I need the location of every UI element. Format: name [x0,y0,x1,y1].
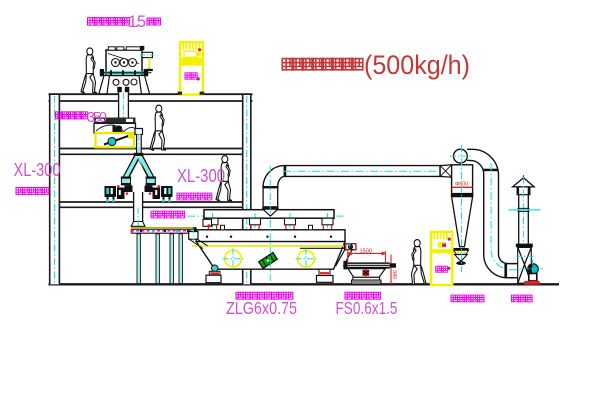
svg-text:XL-300: XL-300 [14,160,61,180]
svg-text:340: 340 [391,270,397,279]
svg-text:350: 350 [87,110,107,126]
svg-text:(500kg/h): (500kg/h) [364,50,470,80]
svg-text:1500: 1500 [360,248,372,254]
svg-text:FS0.6x1.5: FS0.6x1.5 [336,298,398,318]
svg-text:1.5: 1.5 [128,13,146,31]
svg-text:ZLG6x0.75: ZLG6x0.75 [226,298,297,318]
svg-text:XL-300: XL-300 [177,166,225,186]
